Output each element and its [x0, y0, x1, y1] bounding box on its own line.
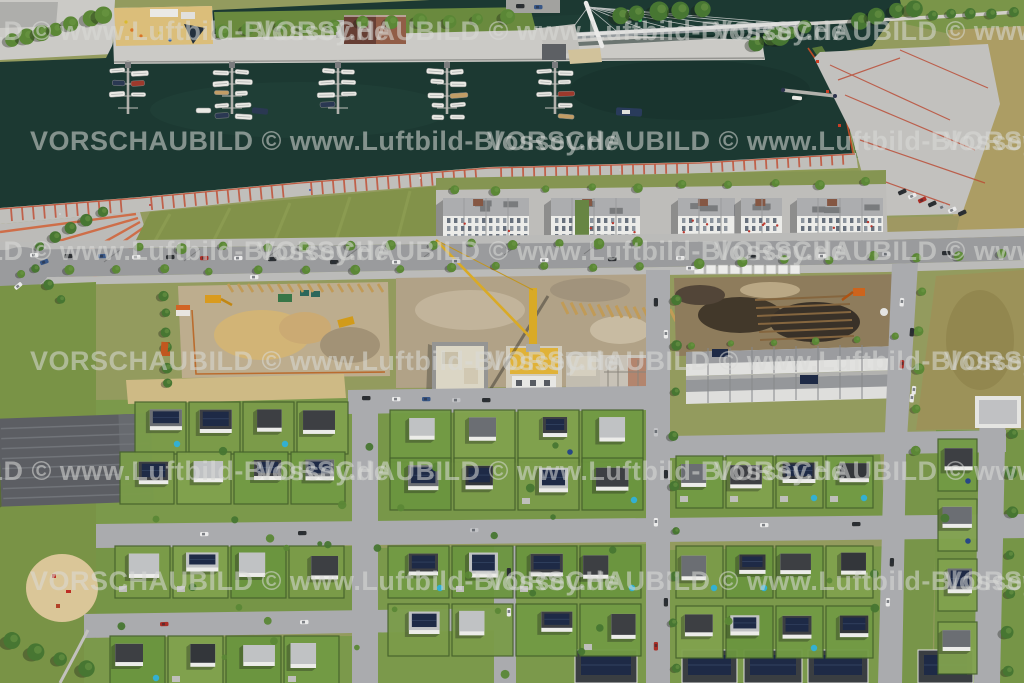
watermark-text: VORSCHAUBILD © www.Luftbild-Blossey.de — [944, 126, 1024, 156]
watermark-text: VORSCHAUBILD © www.Luftbild-Blossey.de — [714, 236, 1024, 266]
watermark-text: VORSCHAUBILD © www.Luftbild-Blossey.de — [944, 566, 1024, 596]
aerial-photo: VORSCHAUBILD © www.Luftbild-Blossey.deVO… — [0, 0, 1024, 683]
aerial-photo-preview: VORSCHAUBILD © www.Luftbild-Blossey.deVO… — [0, 0, 1024, 683]
watermark-text: VORSCHAUBILD © www.Luftbild-Blossey.de — [714, 456, 1024, 486]
watermark-text: VORSCHAUBILD © www.Luftbild-Blossey.de — [944, 346, 1024, 376]
watermark-text: VORSCHAUBILD © www.Luftbild-Blossey.de — [714, 16, 1024, 46]
